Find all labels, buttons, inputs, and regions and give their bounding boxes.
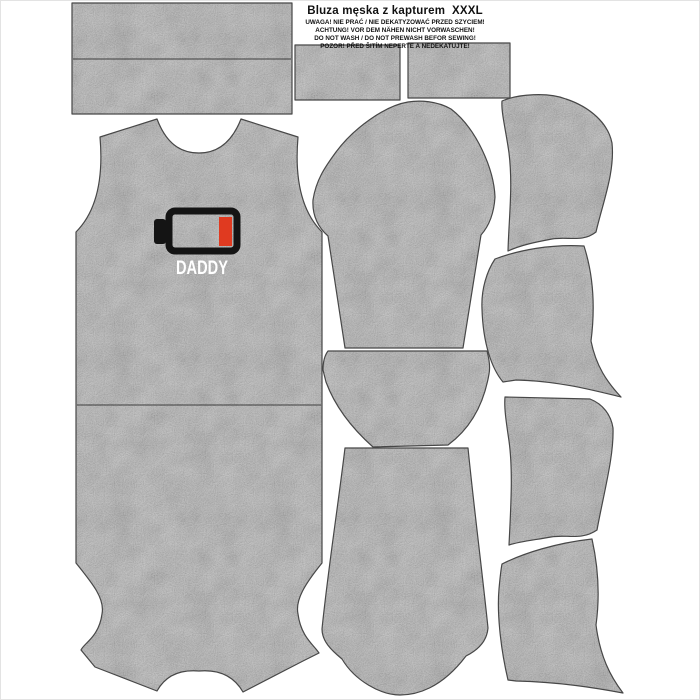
print-text: DADDY [176, 258, 228, 279]
piece-hood-side-3 [505, 397, 613, 545]
battery-terminal [154, 219, 166, 244]
piece-cuff-left [295, 45, 400, 100]
piece-hood-side-4 [498, 539, 623, 693]
battery-charge-bar [219, 217, 232, 246]
piece-hood-side-2 [482, 246, 621, 397]
fabric-panel-sheet: DADDY Bluza męska z kapturem XXXL UWAGA!… [0, 0, 700, 700]
piece-cuff-right [408, 43, 510, 98]
piece-pocket-facing [323, 351, 490, 447]
pattern-pieces-canvas: DADDY [0, 0, 700, 700]
piece-sleeve-bottom [322, 448, 488, 695]
piece-sleeve-top [313, 101, 495, 348]
piece-hood-side-1 [502, 95, 613, 251]
